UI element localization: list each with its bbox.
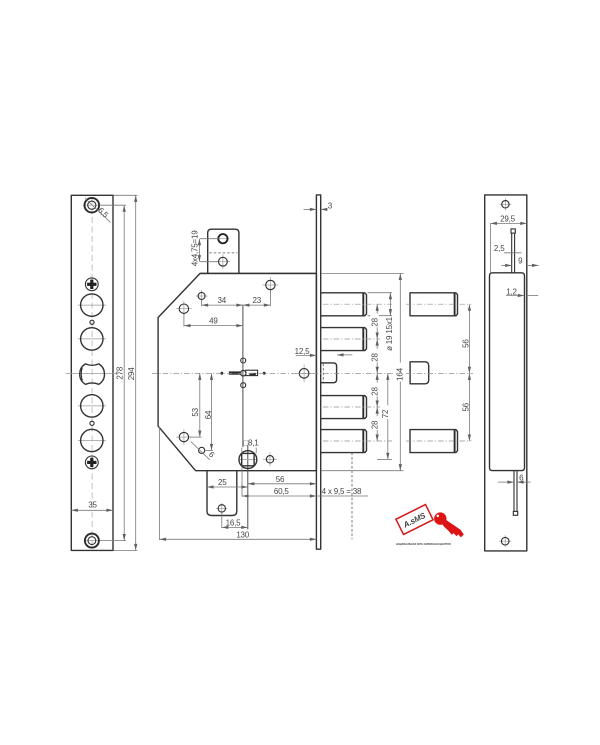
svg-text:278: 278: [116, 366, 125, 379]
svg-text:4 x 9,5 = 38: 4 x 9,5 = 38: [322, 487, 362, 496]
svg-text:28: 28: [371, 317, 380, 326]
svg-text:НАЦИОНАЛЬНАЯ СЕТЬ СЕРВИСНЫХ ЦЕ: НАЦИОНАЛЬНАЯ СЕТЬ СЕРВИСНЫХ ЦЕНТРОВ: [396, 543, 451, 546]
svg-text:294: 294: [127, 367, 136, 380]
svg-text:28: 28: [371, 386, 380, 395]
svg-text:29,5: 29,5: [500, 214, 516, 223]
svg-text:56: 56: [276, 475, 285, 484]
svg-text:ø 19 15x1: ø 19 15x1: [385, 316, 394, 351]
svg-text:9: 9: [518, 257, 523, 266]
svg-text:16,5: 16,5: [226, 519, 242, 528]
svg-text:72: 72: [381, 409, 390, 418]
svg-text:1,2: 1,2: [506, 287, 517, 296]
svg-text:28: 28: [371, 352, 380, 361]
svg-text:34: 34: [218, 296, 227, 305]
svg-text:3: 3: [328, 202, 333, 211]
svg-text:4x4,75=19: 4x4,75=19: [190, 230, 199, 267]
svg-text:35: 35: [88, 501, 97, 510]
svg-text:56: 56: [461, 402, 470, 411]
svg-text:130: 130: [236, 530, 249, 539]
svg-text:23: 23: [253, 296, 262, 305]
svg-text:56: 56: [461, 339, 470, 348]
svg-text:25: 25: [218, 478, 227, 487]
svg-text:49: 49: [209, 317, 218, 326]
svg-text:12,5: 12,5: [295, 347, 311, 356]
svg-text:2,5: 2,5: [494, 244, 505, 253]
svg-text:60,5: 60,5: [274, 487, 290, 496]
svg-text:6: 6: [519, 473, 524, 482]
svg-text:□8,1: □8,1: [243, 439, 259, 448]
svg-text:28: 28: [371, 420, 380, 429]
svg-text:64: 64: [204, 410, 213, 419]
svg-text:53: 53: [191, 407, 200, 416]
svg-text:164: 164: [396, 367, 405, 380]
